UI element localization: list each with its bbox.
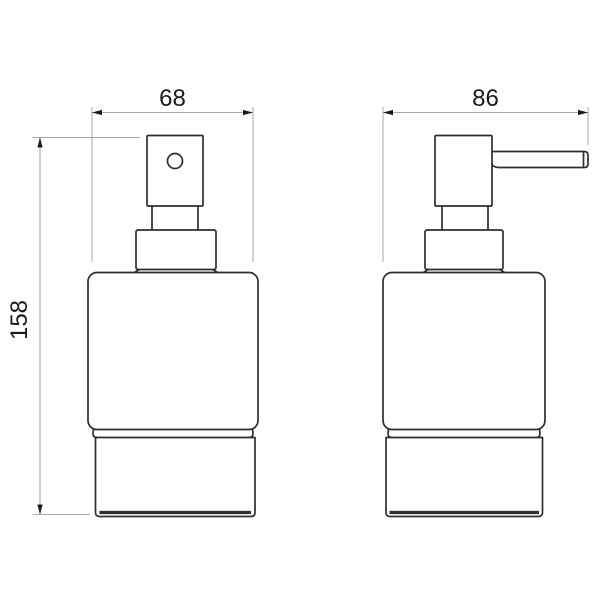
dimension-label-158: 158 [6,300,33,340]
pump-head-side [435,136,492,207]
pump-spout [490,152,588,168]
pump-nozzle-hole [168,154,183,169]
dispenser-dimension-drawing: 68 86 158 [0,0,600,600]
body-base-joint-side [388,430,540,438]
pump-collar [136,230,216,270]
dimension-label-68: 68 [159,85,186,112]
bottle-body [88,273,258,430]
pump-collar-side [425,230,503,270]
side-view [383,136,588,517]
bottle-body-side [383,273,545,430]
arrowhead-bottom-158 [37,505,42,515]
body-base-joint [93,430,253,438]
arrowhead-right-86 [578,110,588,115]
pump-head [147,136,203,207]
arrowhead-top-158 [37,138,42,148]
arrowhead-left-68 [92,110,102,115]
technical-drawing-canvas: 68 86 158 [0,0,600,600]
bottle-base [96,438,256,517]
dimension-label-86: 86 [472,85,499,112]
arrowhead-right-68 [243,110,253,115]
arrowhead-left-86 [383,110,393,115]
front-view [88,136,258,517]
bottle-base-side [386,438,543,517]
